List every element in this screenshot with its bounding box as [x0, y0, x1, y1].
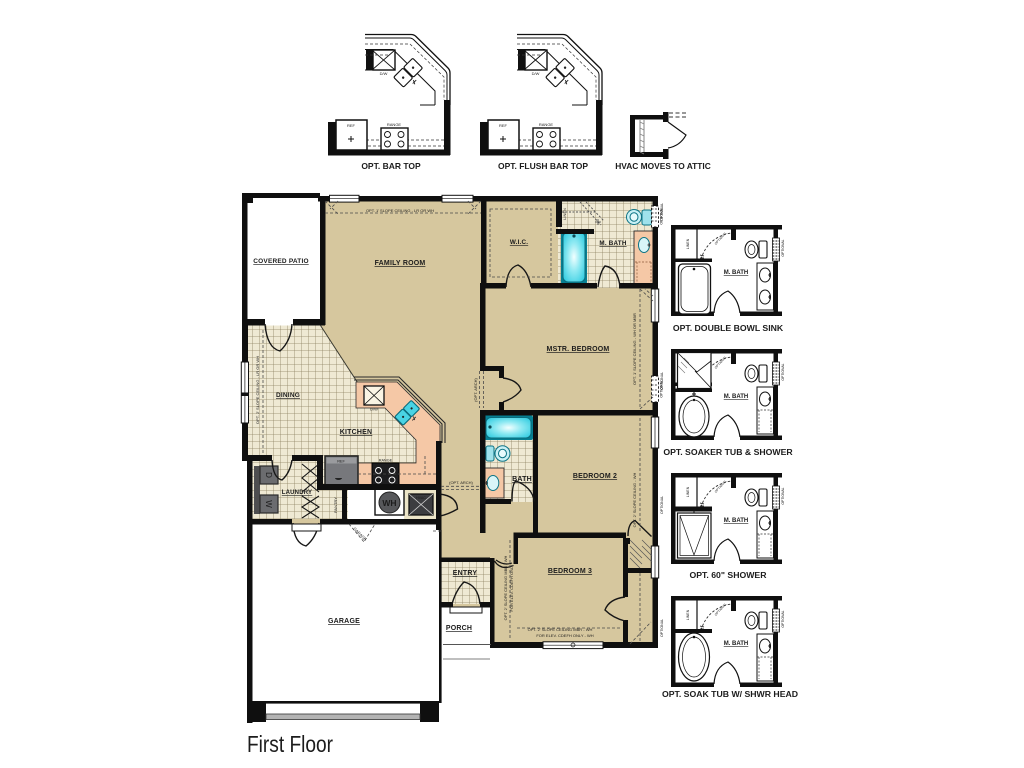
svg-text:ENTRY: ENTRY [453, 570, 478, 577]
svg-text:OPT. FLUSH BAR TOP: OPT. FLUSH BAR TOP [498, 161, 588, 171]
svg-text:HVAC MOVES TO ATTIC: HVAC MOVES TO ATTIC [615, 161, 711, 171]
svg-text:MSTR. BEDROOM: MSTR. BEDROOM [547, 346, 610, 353]
svg-text:REF: REF [347, 123, 356, 128]
svg-text:RANGE: RANGE [379, 459, 393, 463]
svg-text:W.I.C.: W.I.C. [510, 239, 528, 246]
svg-text:D: D [264, 472, 273, 478]
svg-text:BEDROOM 3: BEDROOM 3 [548, 568, 592, 575]
svg-text:REF: REF [499, 123, 508, 128]
svg-text:LINEN: LINEN [562, 208, 567, 220]
svg-text:FOR ELEV. CDEFH ONLY: FOR ELEV. CDEFH ONLY [509, 564, 514, 611]
svg-text:(OPT. ARCH): (OPT. ARCH) [473, 377, 478, 401]
svg-text:OPTIONAL: OPTIONAL [660, 372, 664, 390]
svg-text:FAMILY ROOM: FAMILY ROOM [375, 260, 426, 267]
svg-text:OPT. 1' SLOPE CEILING - LR OR: OPT. 1' SLOPE CEILING - LR OR WH [366, 208, 434, 213]
svg-text:WH: WH [382, 498, 396, 508]
svg-text:OPTIONAL: OPTIONAL [660, 619, 664, 637]
svg-text:OPT. BAR TOP: OPT. BAR TOP [361, 161, 421, 171]
svg-text:KITCHEN: KITCHEN [340, 429, 373, 436]
svg-text:FOR ELEV. CDEFH ONLY - WH: FOR ELEV. CDEFH ONLY - WH [536, 633, 593, 638]
svg-text:(OPT. ARCH): (OPT. ARCH) [449, 480, 473, 485]
svg-text:OPT. 2' SLOPE CEILING - WH: OPT. 2' SLOPE CEILING - WH [632, 473, 637, 528]
svg-text:RANGE: RANGE [539, 122, 554, 127]
svg-text:BATH: BATH [512, 476, 532, 483]
svg-text:RANGE: RANGE [387, 122, 402, 127]
svg-text:OPTIONAL: OPTIONAL [660, 496, 664, 514]
svg-text:DINING: DINING [276, 392, 300, 399]
svg-text:OPTIONAL: OPTIONAL [660, 203, 664, 221]
svg-text:BEDROOM 2: BEDROOM 2 [573, 473, 617, 480]
svg-text:M. BATH: M. BATH [599, 240, 626, 247]
svg-text:HVAC: HVAC [416, 496, 426, 500]
svg-text:W: W [264, 500, 273, 508]
svg-text:OPT. SOAKER TUB & SHOWER: OPT. SOAKER TUB & SHOWER [663, 447, 793, 457]
svg-text:OPT. 2' SLOPE CEILING MBR - WH: OPT. 2' SLOPE CEILING MBR - WH [528, 627, 593, 632]
svg-text:GARAGE: GARAGE [328, 618, 360, 625]
svg-text:PORCH: PORCH [446, 625, 472, 632]
svg-text:REF: REF [337, 460, 345, 464]
svg-text:LAUNDRY: LAUNDRY [282, 490, 313, 496]
svg-text:OPT. 60" SHOWER: OPT. 60" SHOWER [689, 570, 767, 580]
svg-text:OPT. 2' SLOPE CEILING MBR - WH: OPT. 2' SLOPE CEILING MBR - WH [503, 556, 508, 621]
svg-text:PANTRY: PANTRY [333, 497, 338, 513]
svg-text:OPT. 1' SLOPE CEILING - WH OR: OPT. 1' SLOPE CEILING - WH OR MBR [632, 313, 637, 385]
svg-text:OPT. DOUBLE BOWL SINK: OPT. DOUBLE BOWL SINK [673, 323, 784, 333]
svg-text:D/W: D/W [380, 71, 388, 76]
svg-text:First Floor: First Floor [247, 731, 333, 757]
svg-text:D/W: D/W [532, 71, 540, 76]
svg-text:OPT. 2' SLOPE CEILING - LR OR: OPT. 2' SLOPE CEILING - LR OR WH [255, 356, 260, 424]
svg-text:OPT. SOAK TUB W/ SHWR HEAD: OPT. SOAK TUB W/ SHWR HEAD [662, 689, 798, 699]
svg-text:D/W: D/W [370, 407, 378, 412]
svg-text:COVERED PATIO: COVERED PATIO [253, 258, 308, 265]
